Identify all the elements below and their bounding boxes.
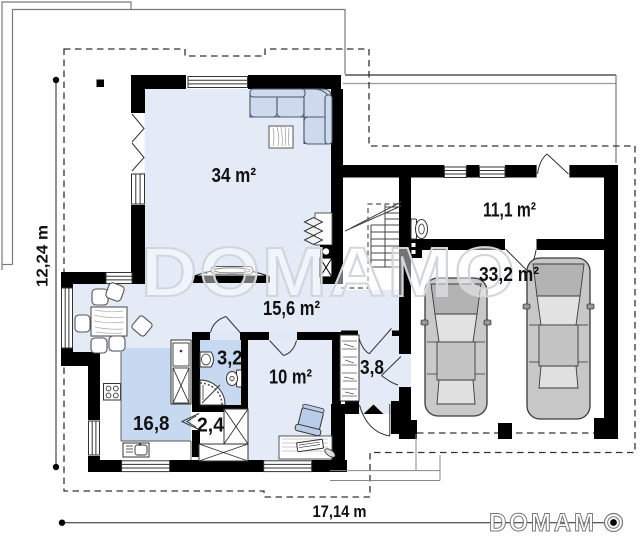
svg-text:17,14 m: 17,14 m [313,503,367,521]
svg-text:11,1 m²: 11,1 m² [483,200,536,222]
svg-text:2,4: 2,4 [197,415,225,437]
svg-text:3,2: 3,2 [217,348,243,370]
svg-text:3,8: 3,8 [360,357,384,379]
svg-text:DOMAMO: DOMAMO [141,233,517,311]
svg-text:12,24 m: 12,24 m [35,225,52,287]
svg-text:16,8: 16,8 [133,413,170,435]
svg-text:DOMAM: DOMAM [489,509,597,537]
svg-text:15,6 m²: 15,6 m² [263,298,320,320]
svg-text:34 m²: 34 m² [212,165,257,187]
svg-text:10 m²: 10 m² [269,367,312,389]
svg-text:33,2 m²: 33,2 m² [479,264,539,286]
